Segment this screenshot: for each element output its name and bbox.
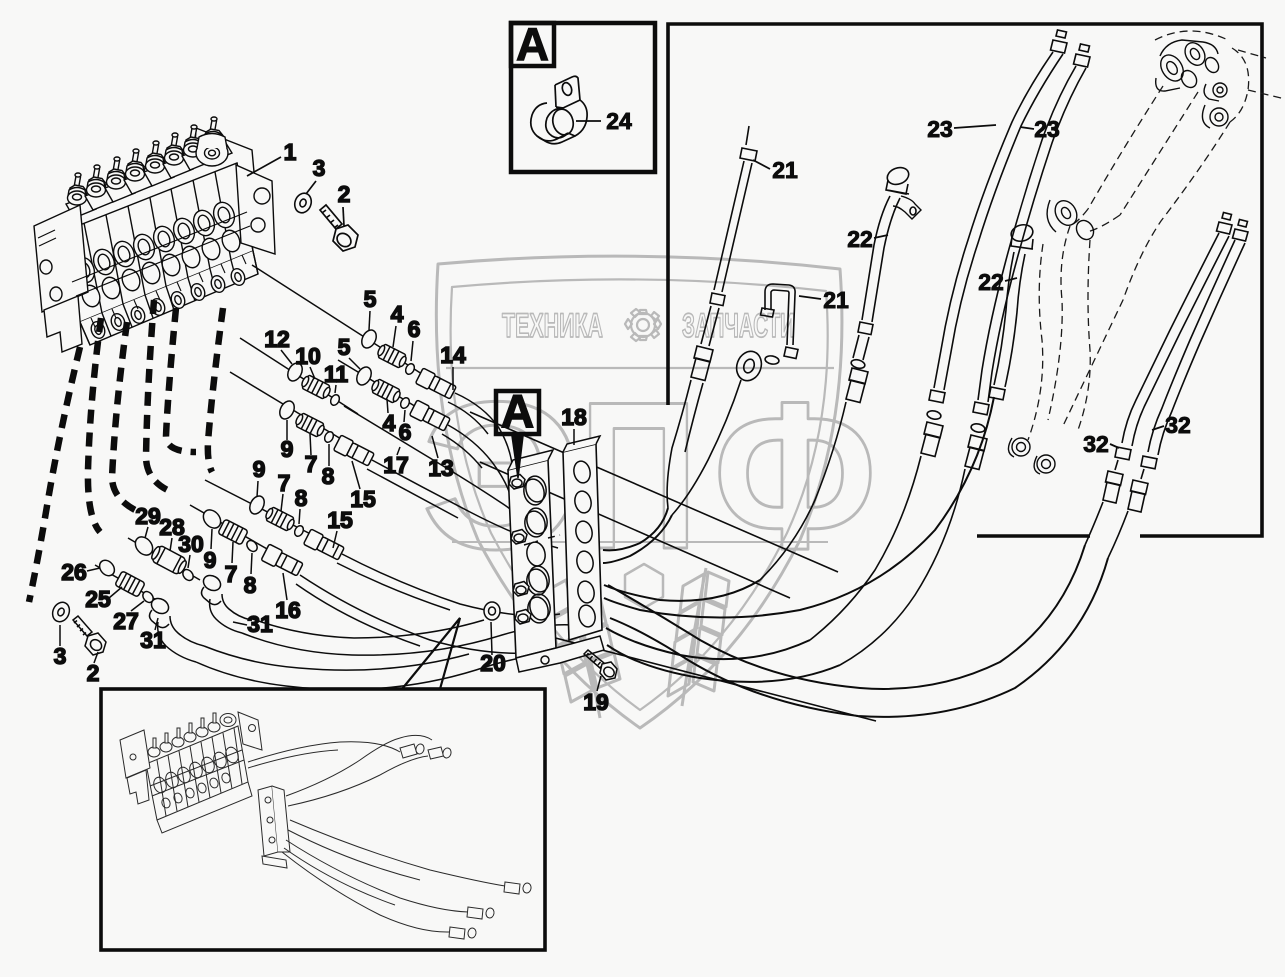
svg-text:21: 21 [823, 287, 849, 313]
svg-text:2: 2 [87, 660, 100, 686]
svg-text:5: 5 [338, 334, 351, 360]
svg-text:A: A [501, 385, 534, 437]
svg-text:10: 10 [295, 343, 321, 369]
svg-text:17: 17 [383, 452, 409, 478]
svg-text:9: 9 [204, 547, 217, 573]
svg-text:Ф: Ф [713, 358, 877, 593]
svg-text:30: 30 [178, 531, 204, 557]
svg-text:2: 2 [338, 181, 351, 207]
svg-text:16: 16 [275, 597, 301, 623]
svg-text:9: 9 [253, 456, 266, 482]
svg-text:8: 8 [322, 463, 335, 489]
svg-text:19: 19 [583, 689, 609, 715]
svg-text:7: 7 [278, 470, 291, 496]
svg-text:14: 14 [440, 342, 466, 368]
svg-text:8: 8 [244, 572, 257, 598]
svg-text:24: 24 [606, 108, 632, 134]
svg-text:15: 15 [350, 486, 376, 512]
svg-text:7: 7 [225, 561, 238, 587]
svg-text:13: 13 [428, 455, 454, 481]
svg-text:4: 4 [383, 410, 396, 436]
svg-text:22: 22 [978, 269, 1004, 295]
svg-text:6: 6 [399, 419, 412, 445]
svg-text:15: 15 [327, 507, 353, 533]
svg-text:12: 12 [264, 326, 290, 352]
svg-text:22: 22 [847, 226, 873, 252]
svg-text:27: 27 [113, 608, 139, 634]
svg-text:21: 21 [772, 157, 798, 183]
svg-text:31: 31 [247, 611, 273, 637]
svg-text:20: 20 [480, 650, 506, 676]
svg-text:11: 11 [324, 361, 349, 387]
svg-text:1: 1 [284, 139, 297, 165]
svg-text:A: A [516, 18, 549, 70]
svg-text:3: 3 [54, 643, 67, 669]
svg-text:8: 8 [295, 485, 308, 511]
svg-text:4: 4 [391, 301, 404, 327]
svg-text:23: 23 [1034, 116, 1060, 142]
svg-text:18: 18 [561, 404, 587, 430]
svg-text:32: 32 [1165, 412, 1191, 438]
svg-text:31: 31 [140, 627, 166, 653]
svg-text:29: 29 [135, 503, 161, 529]
svg-text:3: 3 [313, 155, 326, 181]
svg-text:ТЕХНИКА: ТЕХНИКА [502, 307, 603, 345]
svg-text:5: 5 [364, 286, 377, 312]
svg-text:25: 25 [85, 586, 111, 612]
svg-text:ЗАПЧАСТИ: ЗАПЧАСТИ [682, 307, 795, 345]
svg-text:32: 32 [1083, 431, 1109, 457]
svg-text:6: 6 [408, 316, 421, 342]
svg-text:23: 23 [927, 116, 953, 142]
svg-text:26: 26 [61, 559, 87, 585]
